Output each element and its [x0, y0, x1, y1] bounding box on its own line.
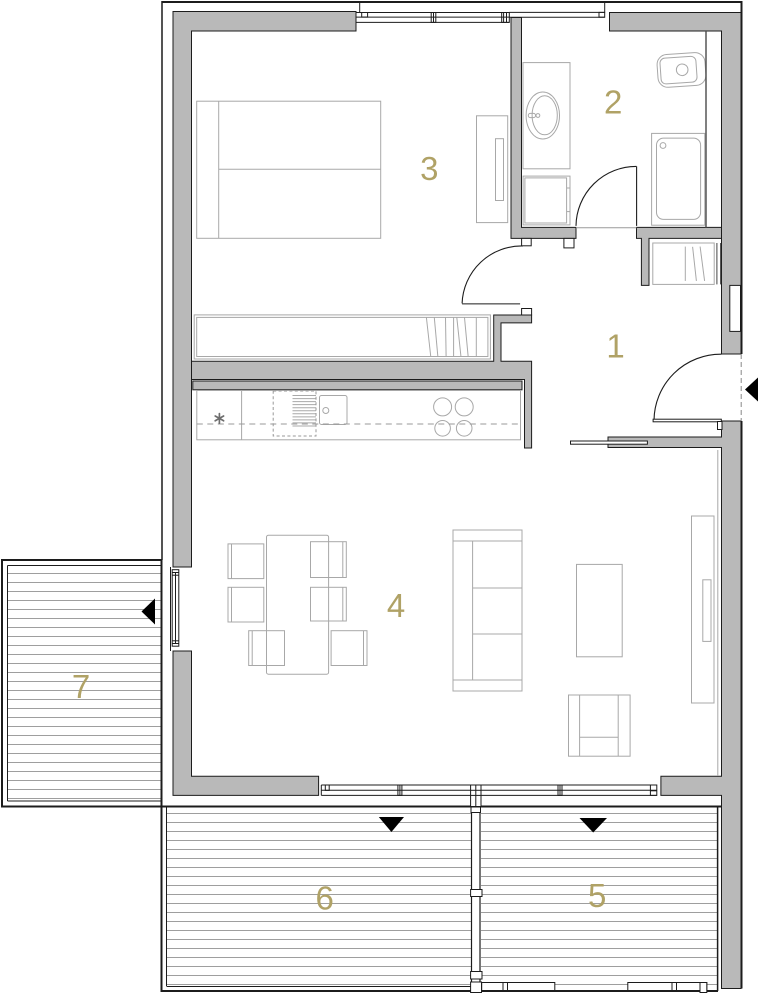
svg-text:4: 4 [387, 587, 405, 624]
svg-text:5: 5 [588, 877, 606, 914]
svg-text:1: 1 [606, 328, 624, 365]
svg-text:6: 6 [316, 880, 334, 917]
svg-text:7: 7 [72, 668, 90, 705]
svg-text:3: 3 [420, 150, 438, 187]
svg-text:2: 2 [604, 84, 622, 121]
